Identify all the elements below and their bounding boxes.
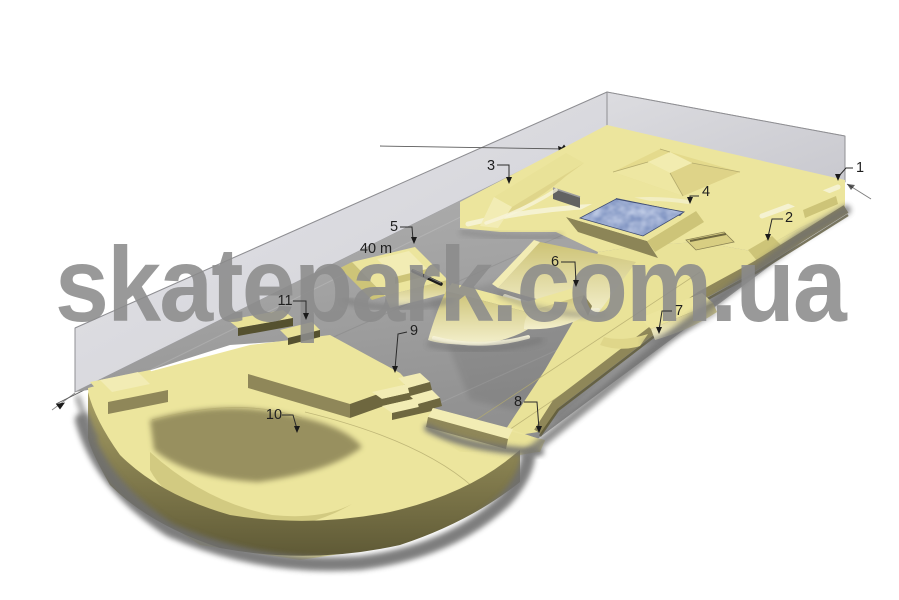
callout-7-label: 7 [675, 303, 683, 319]
callout-2-label: 2 [785, 210, 793, 226]
skatepark-3d-diagram: skatepark.com.ua 40 m 1 2 3 4 5 [0, 0, 899, 600]
callout-11-label: 11 [277, 293, 292, 309]
callout-5-label: 5 [390, 219, 398, 235]
dimension-label: 40 m [360, 241, 392, 257]
callout-1-label: 1 [856, 160, 864, 176]
skatepark-plan-page: skatepark.com.ua 40 m 1 2 3 4 5 [0, 0, 899, 600]
callout-6-label: 6 [551, 254, 559, 270]
callout-3-label: 3 [487, 158, 495, 174]
callout-9-label: 9 [410, 323, 418, 339]
callout-8-label: 8 [514, 394, 522, 410]
callout-4-label: 4 [702, 184, 710, 200]
watermark-text: skatepark.com.ua [55, 226, 848, 344]
corner-extension-marks [847, 184, 871, 199]
callout-10-label: 10 [266, 407, 282, 423]
